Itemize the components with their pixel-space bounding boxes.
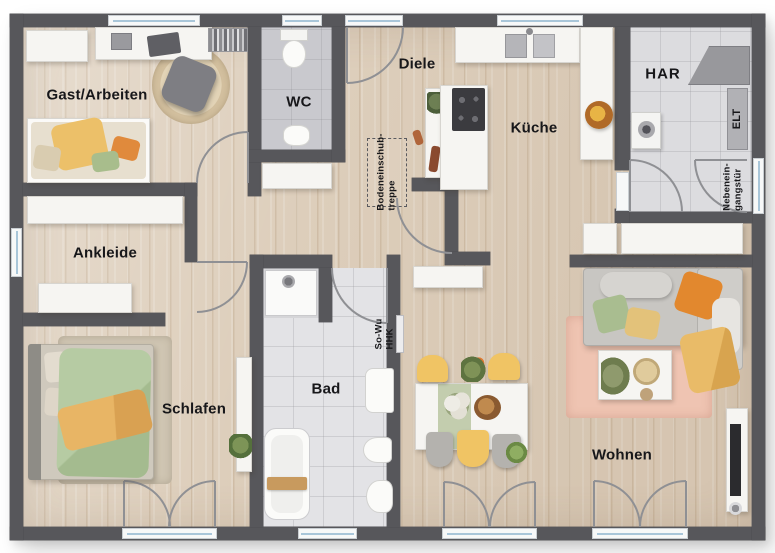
coffee-table-plant <box>601 356 631 396</box>
window-bad <box>298 528 357 539</box>
room-label-diele: Diele <box>399 56 436 73</box>
cooktop <box>452 88 485 131</box>
room-label-ankleide: Ankleide <box>73 245 137 262</box>
bad-toilet <box>366 480 393 513</box>
wc-toilet-bowl <box>282 40 306 68</box>
annotation-loft-ladder: Bodeneinschub- treppe <box>377 133 398 210</box>
side-entrance-threshold <box>753 158 764 214</box>
coffee-table-vase <box>640 388 653 401</box>
annotation-towel-radiator: So-Wu HHK <box>375 319 396 350</box>
daybed-pillow-beige <box>32 144 61 172</box>
window-glass <box>301 533 353 535</box>
window-glass <box>501 20 578 22</box>
wall-har-south <box>630 212 752 223</box>
door-glass <box>348 20 400 22</box>
window-wc <box>282 15 322 26</box>
wall-gast-south <box>23 183 197 196</box>
wall-kueche-har-post <box>615 209 630 223</box>
bad-basin <box>365 368 394 413</box>
wc-basin <box>283 125 310 146</box>
room-label-wc: WC <box>286 94 311 111</box>
window-glass <box>16 231 18 274</box>
kitchen-sink-right <box>533 34 555 58</box>
wall-shower-stub <box>319 268 332 322</box>
chair-yellow-top1 <box>417 355 448 382</box>
window-glass <box>113 20 196 22</box>
room-label-schlafen: Schlafen <box>162 401 226 418</box>
room-label-kueche: Küche <box>511 120 558 137</box>
window-gast <box>108 15 200 26</box>
terrace-door-wohnen-2 <box>592 528 688 539</box>
bookshelf <box>208 28 248 52</box>
door-glass <box>758 161 760 211</box>
laptop <box>147 32 182 57</box>
bed-headboard <box>28 344 41 480</box>
chair-gray-bottom1 <box>426 432 453 467</box>
chair-yellow-bottom <box>457 430 489 467</box>
kitchen-counter-right <box>580 27 613 160</box>
annotation-line: Nebenein- <box>723 163 734 211</box>
wardrobe-bottom <box>38 283 132 313</box>
entrance-door-threshold <box>345 15 403 26</box>
annotation-line: HHK <box>385 319 396 350</box>
washing-machine-door <box>638 121 655 138</box>
tv-screen <box>730 424 741 496</box>
room-label-har: HAR <box>645 66 681 83</box>
sofa-pillow-yellow <box>624 306 662 340</box>
wall-gast-wc <box>248 27 261 196</box>
annotation-line: Bodeneinschub- <box>377 133 388 210</box>
sofa-bolster <box>600 272 672 298</box>
towel-radiator <box>396 315 404 353</box>
terrace-door-wohnen-1 <box>442 528 537 539</box>
room-label-wohnen: Wohnen <box>592 447 652 464</box>
table-flowers <box>441 390 473 420</box>
har-door-threshold <box>616 172 629 211</box>
storage-cabinet-left <box>583 223 617 254</box>
bathtub-inner <box>271 435 303 513</box>
storage-cabinet-right <box>621 223 743 254</box>
speaker <box>729 502 742 515</box>
table-plant-small <box>461 355 486 382</box>
annotation-line: So-Wu <box>375 319 386 350</box>
wall-diele-stub-v <box>445 191 458 252</box>
annotation-side-entrance: Nebenein- gangstür <box>723 163 744 211</box>
annotation-line: gangstür <box>733 163 744 211</box>
door-glass <box>127 533 213 535</box>
wall-wc-south <box>248 150 345 162</box>
chair-greenery <box>505 440 528 465</box>
floor-plan: Gast/Arbeiten WC Diele Küche HAR Ankleid… <box>0 0 775 553</box>
wall-wohnen-north <box>570 255 752 267</box>
door-glass <box>447 533 533 535</box>
terrace-door-schlafen <box>122 528 217 539</box>
wall-wc-diele <box>332 27 345 162</box>
shower-head <box>282 275 295 288</box>
dining-sideboard <box>413 266 483 288</box>
coffee-table-tray <box>633 358 660 385</box>
window-ankleide <box>11 228 22 277</box>
wardrobe-top <box>27 196 183 224</box>
plant-bedroom <box>229 434 252 459</box>
chair-yellow-top2 <box>488 353 520 380</box>
wall-dining-north <box>445 252 490 265</box>
cabinet-gast <box>26 30 88 62</box>
window-kueche <box>497 15 583 26</box>
bathtub-tray <box>267 477 307 490</box>
wall-kueche-har-upper <box>615 27 630 170</box>
kitchen-faucet <box>526 28 533 35</box>
wall-ankleide-east <box>185 183 197 262</box>
desk-tablet <box>111 33 132 50</box>
kitchen-sink-left <box>505 34 527 58</box>
door-glass <box>597 533 683 535</box>
daybed-pillow-green <box>91 150 120 173</box>
wall-ankleide-south <box>23 313 165 326</box>
annotation-line: treppe <box>387 133 398 210</box>
table-bowl <box>474 395 501 420</box>
room-label-gast: Gast/Arbeiten <box>47 87 148 104</box>
window-glass <box>285 20 320 22</box>
bad-bidet <box>363 437 392 463</box>
annotation-elt: ELT <box>732 109 743 130</box>
hall-cabinet <box>262 163 332 189</box>
room-label-bad: Bad <box>312 381 341 398</box>
fruit-bowl <box>585 101 613 129</box>
